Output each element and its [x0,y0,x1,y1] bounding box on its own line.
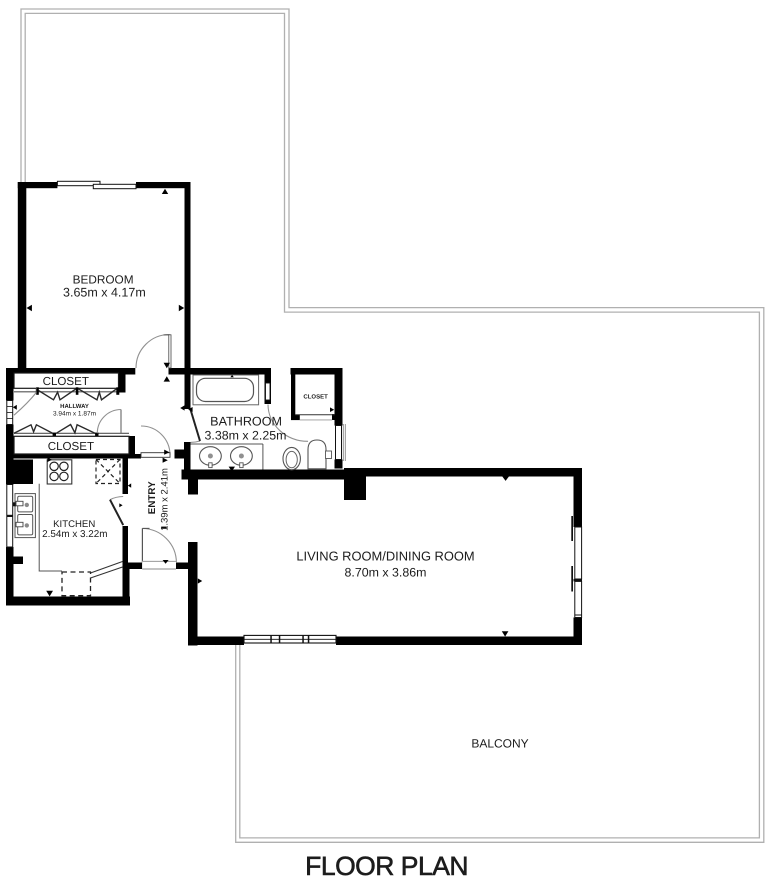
svg-text:CLOSET: CLOSET [43,375,89,388]
svg-text:BEDROOM: BEDROOM [73,273,134,287]
svg-text:8.70m x 3.86m: 8.70m x 3.86m [345,566,427,580]
svg-text:CLOSET: CLOSET [48,440,94,453]
svg-text:FLOOR PLAN: FLOOR PLAN [305,851,468,881]
svg-text:BALCONY: BALCONY [471,737,528,751]
svg-text:2.54m x 3.22m: 2.54m x 3.22m [42,529,107,540]
svg-text:3.38m x 2.25m: 3.38m x 2.25m [205,429,287,443]
svg-text:LIVING ROOM/DINING ROOM: LIVING ROOM/DINING ROOM [296,549,474,564]
svg-text:1.39m x 2.41m: 1.39m x 2.41m [160,468,171,531]
svg-text:3.65m x 4.17m: 3.65m x 4.17m [63,286,146,300]
svg-text:BATHROOM: BATHROOM [210,415,282,429]
svg-text:HALLWAY: HALLWAY [60,403,89,410]
svg-text:3.94m x 1.87m: 3.94m x 1.87m [53,411,96,418]
svg-text:CLOSET: CLOSET [303,394,328,401]
svg-text:ENTRY: ENTRY [147,481,158,514]
